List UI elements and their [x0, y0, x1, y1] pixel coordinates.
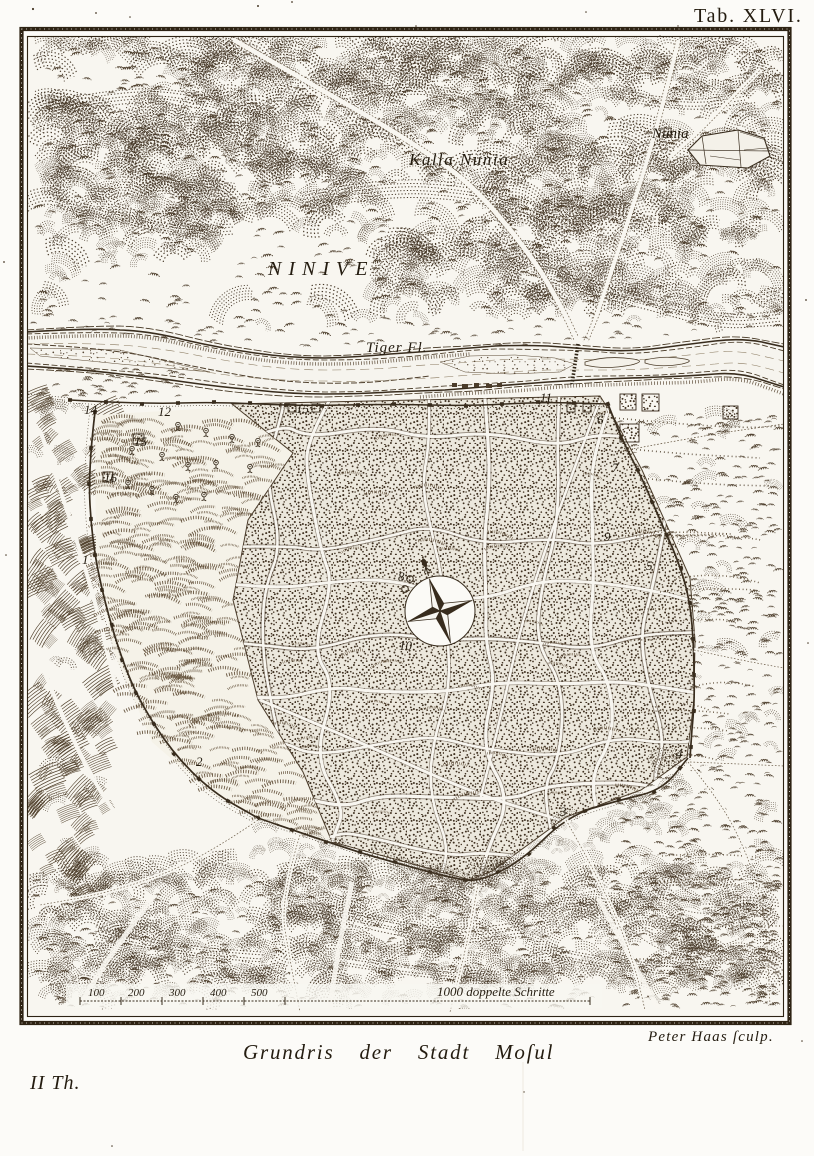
- svg-text:3: 3: [559, 804, 567, 819]
- svg-text:NINIVE: NINIVE: [267, 258, 374, 280]
- svg-text:II Th.: II Th.: [29, 1072, 80, 1094]
- svg-text:300: 300: [168, 987, 186, 999]
- svg-text:4: 4: [676, 746, 683, 761]
- svg-text:Tab. XLVI.: Tab. XLVI.: [694, 5, 803, 27]
- svg-text:6: 6: [597, 412, 604, 427]
- svg-text:14: 14: [84, 402, 98, 417]
- svg-text:Peter Haas ſculp.: Peter Haas ſculp.: [647, 1029, 774, 1045]
- svg-text:12: 12: [158, 404, 172, 419]
- svg-text:500: 500: [251, 987, 268, 999]
- svg-text:Tiger Fl.: Tiger Fl.: [366, 340, 428, 356]
- svg-text:1: 1: [82, 552, 89, 567]
- svg-text:16: 16: [104, 470, 118, 485]
- svg-text:1000 doppelte Schritte: 1000 doppelte Schritte: [437, 984, 555, 999]
- svg-text:9: 9: [604, 529, 611, 544]
- svg-text:5: 5: [646, 558, 653, 573]
- svg-text:2: 2: [196, 754, 203, 769]
- svg-text:15: 15: [134, 434, 148, 449]
- svg-text:15: 15: [296, 401, 310, 416]
- svg-text:11: 11: [540, 390, 552, 405]
- svg-text:Kalla Nunia: Kalla Nunia: [408, 150, 509, 169]
- svg-text:8: 8: [398, 569, 405, 584]
- svg-text:200: 200: [128, 987, 145, 999]
- svg-text:Nunia: Nunia: [651, 126, 689, 142]
- svg-text:100: 100: [88, 987, 105, 999]
- svg-text:7: 7: [612, 460, 619, 475]
- svg-text:10: 10: [399, 638, 413, 653]
- svg-text:Grundris der Stadt Moſul: Grundris der Stadt Moſul: [243, 1040, 554, 1064]
- svg-text:400: 400: [210, 987, 227, 999]
